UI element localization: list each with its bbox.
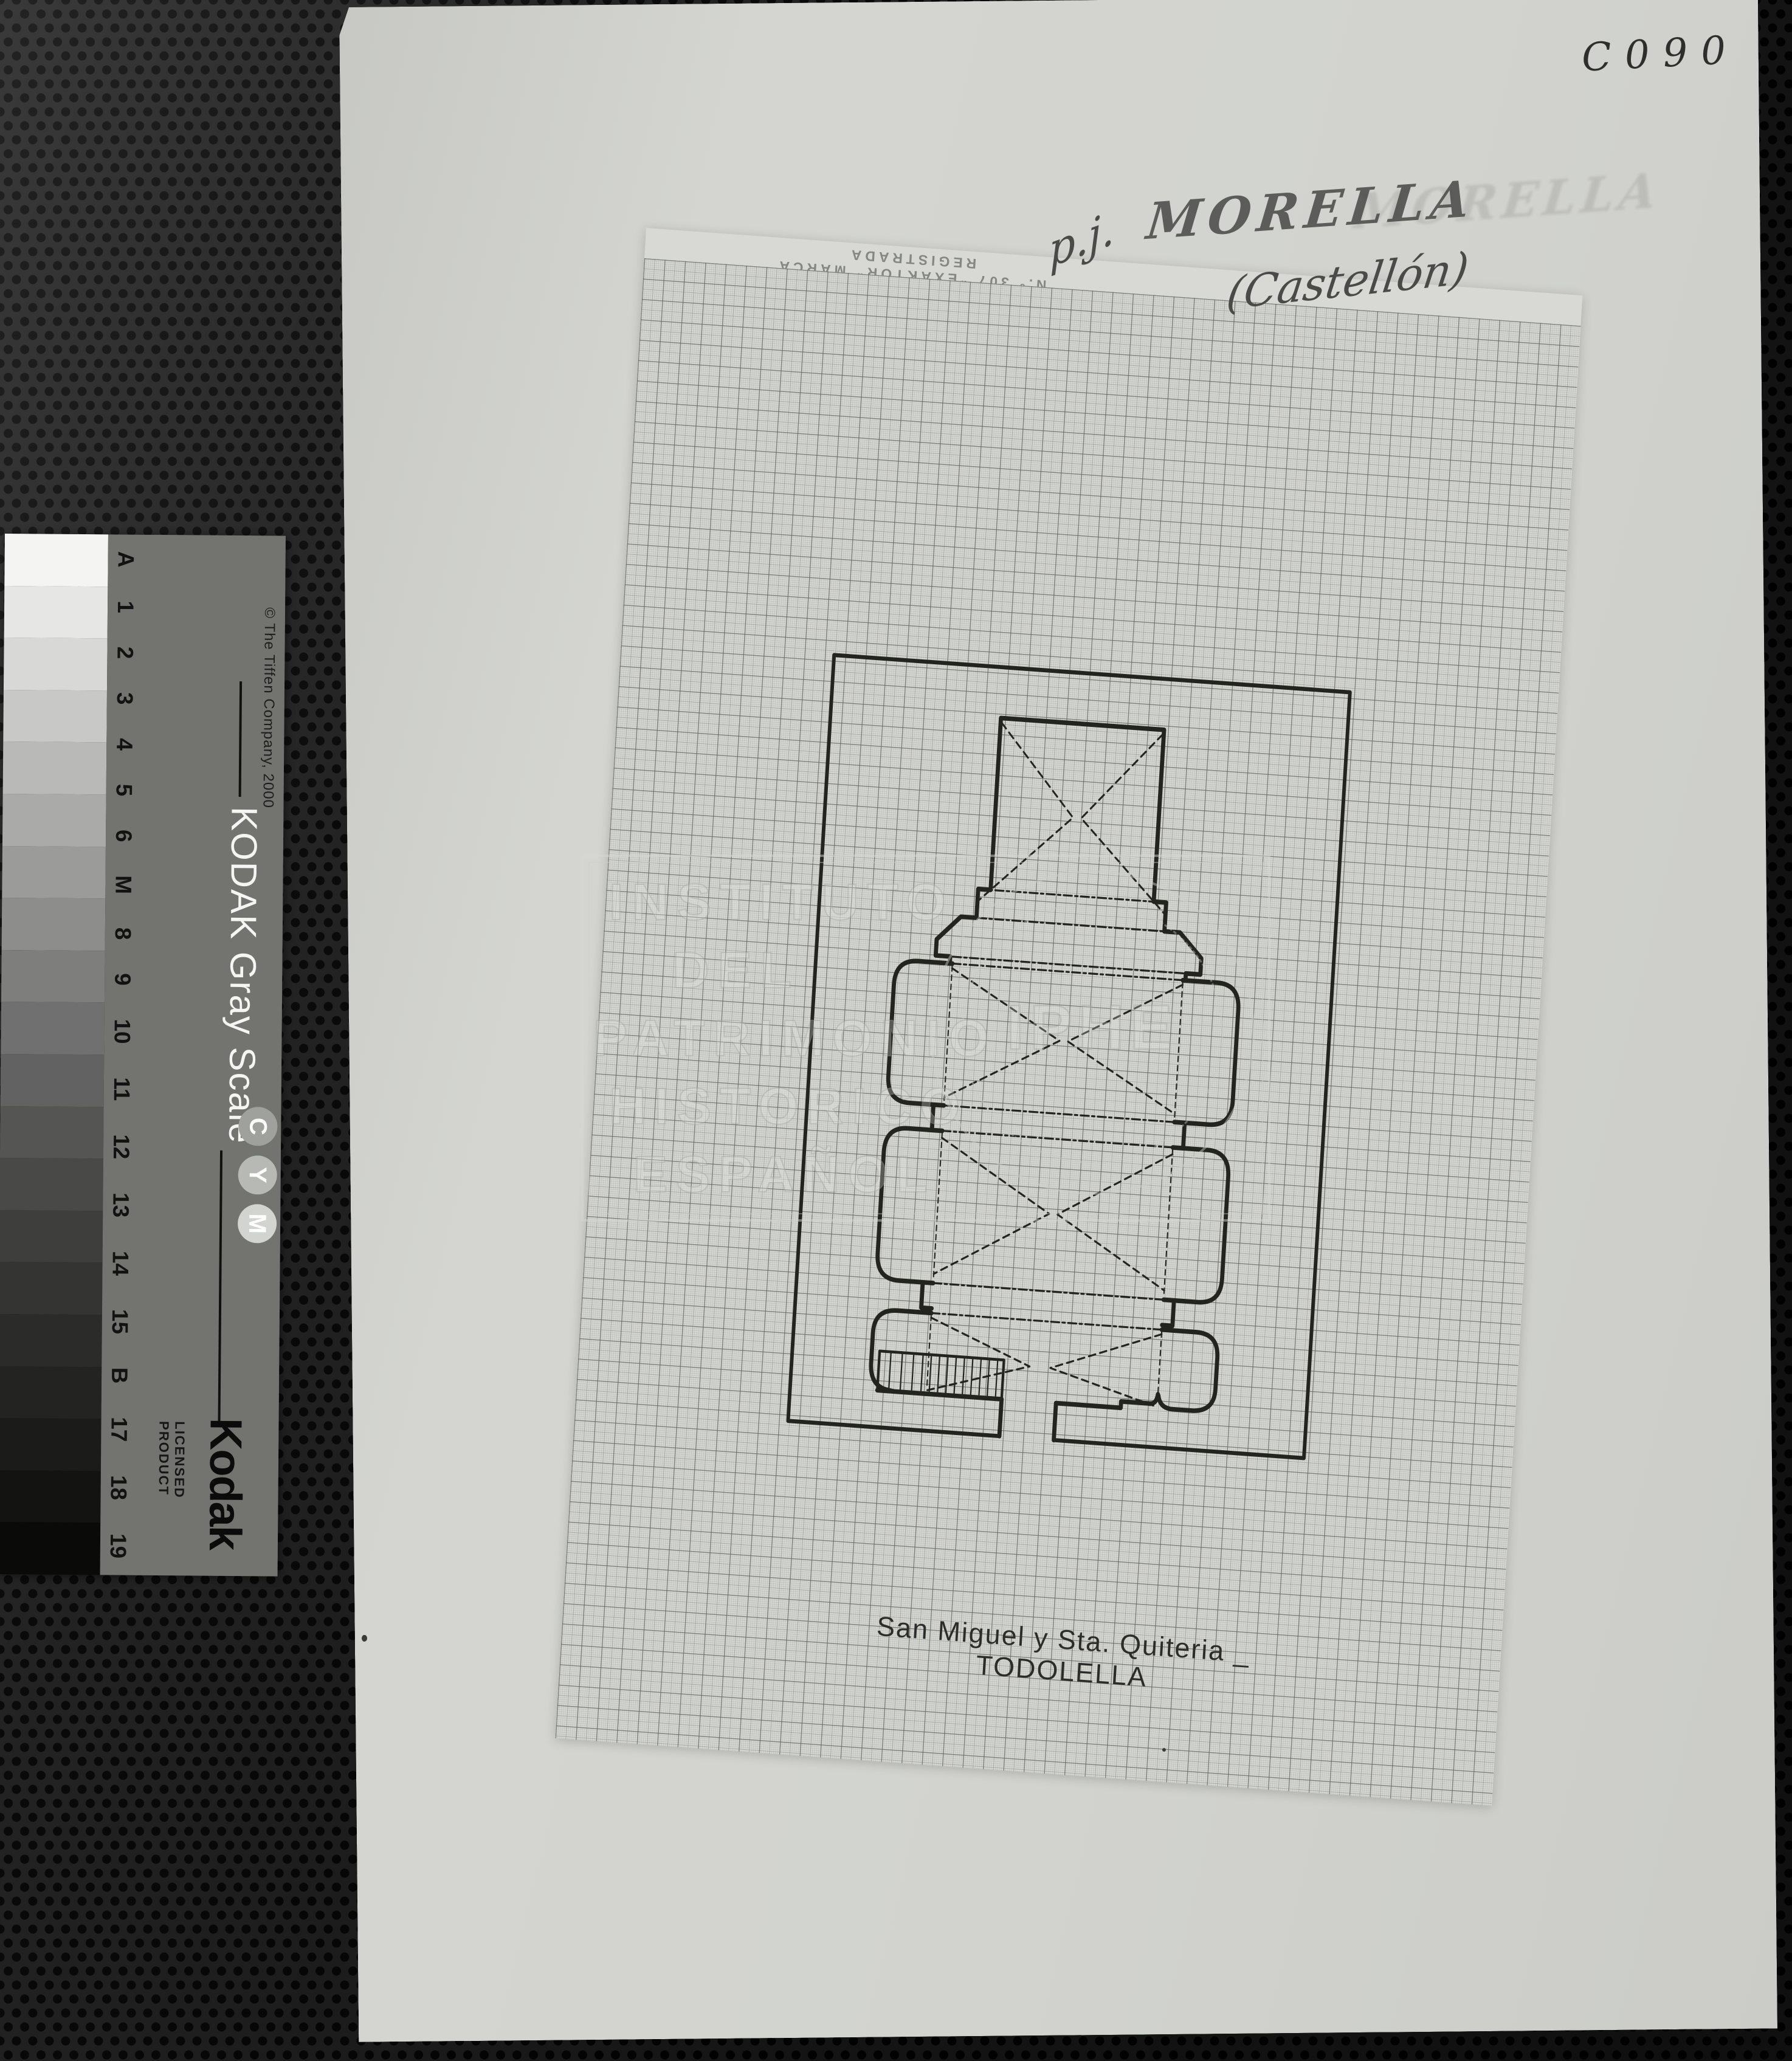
gray-patch bbox=[0, 1470, 101, 1523]
gray-patch bbox=[0, 1418, 102, 1471]
gray-patch bbox=[0, 1314, 102, 1367]
gray-patch bbox=[4, 534, 108, 587]
gray-scale-index-label: A bbox=[112, 534, 139, 584]
gray-scale-label-column: A123456M89101112131415B171819 © The Tiff… bbox=[100, 534, 286, 1576]
gray-scale-index-label: 17 bbox=[106, 1400, 132, 1459]
kodak-gray-scale-strip: A123456M89101112131415B171819 © The Tiff… bbox=[0, 534, 286, 1577]
gray-scale-index-label: 8 bbox=[110, 910, 136, 957]
gray-patch bbox=[1, 1054, 105, 1107]
gray-scale-index-label: 10 bbox=[109, 1002, 135, 1061]
gray-patch bbox=[4, 638, 108, 690]
divider-line bbox=[218, 1151, 222, 1425]
gray-patch bbox=[2, 898, 106, 951]
gray-patch bbox=[2, 846, 106, 899]
gray-patch bbox=[0, 1210, 103, 1263]
plan-bottom-walls bbox=[875, 1374, 1158, 1448]
gray-patch bbox=[0, 1158, 103, 1211]
gray-scale-index-label: 15 bbox=[106, 1292, 133, 1350]
cym-circle-y: Y bbox=[238, 1155, 277, 1195]
gray-scale-index-label: 14 bbox=[107, 1234, 133, 1292]
gray-scale-index-label: 9 bbox=[109, 957, 136, 1003]
gray-scale-index-label: 3 bbox=[112, 675, 138, 721]
gray-patch bbox=[2, 794, 106, 847]
cym-circles: CYM bbox=[238, 1107, 278, 1243]
kodak-gray-scale-title: KODAK Gray Scale bbox=[221, 807, 265, 1144]
plan-chancel-ribs bbox=[980, 722, 1174, 913]
index-labels: A123456M89101112131415B171819 bbox=[105, 534, 139, 1575]
gray-scale-index-label: 5 bbox=[111, 767, 137, 813]
divider-line bbox=[239, 681, 242, 797]
gray-scale-index-label: 19 bbox=[105, 1516, 131, 1575]
gray-patch bbox=[0, 1522, 100, 1575]
gray-scale-rotated-labels: A123456M89101112131415B171819 © The Tiff… bbox=[100, 534, 286, 1576]
plan-chancel-walls bbox=[936, 714, 1215, 981]
gray-patch bbox=[3, 741, 107, 794]
gray-patch bbox=[4, 586, 108, 639]
plan-transverse-lines bbox=[914, 886, 1204, 1331]
plan-left-chapels bbox=[869, 960, 952, 1394]
cym-circle-c: C bbox=[238, 1107, 278, 1146]
graph-paper-sheet: N.º 307 "EXAKTOR" MARCA REGISTRADA bbox=[556, 228, 1583, 1806]
gray-patch bbox=[3, 690, 107, 743]
gray-scale-index-label: 13 bbox=[108, 1176, 134, 1234]
gray-scale-index-label: B bbox=[106, 1350, 133, 1400]
kodak-logo: Kodak bbox=[199, 1418, 252, 1550]
cym-circle-m: M bbox=[238, 1204, 277, 1244]
gray-patches bbox=[0, 534, 108, 1575]
gray-scale-index-label: 4 bbox=[111, 721, 137, 768]
tiffen-copyright: © The Tiffen Company, 2000 bbox=[259, 607, 278, 808]
gray-scale-index-label: 11 bbox=[108, 1061, 134, 1118]
plan-nave-ribs bbox=[927, 968, 1183, 1407]
gray-patch bbox=[0, 1262, 103, 1315]
paper-speck bbox=[1162, 1748, 1166, 1752]
gray-patch bbox=[1, 1002, 105, 1055]
paper-speck bbox=[362, 1635, 367, 1642]
gray-scale-index-label: 18 bbox=[105, 1459, 131, 1517]
gray-scale-index-label: 2 bbox=[112, 630, 138, 676]
gray-scale-index-label: 6 bbox=[111, 813, 137, 859]
gray-scale-index-label: M bbox=[110, 859, 136, 911]
gray-patch bbox=[1, 950, 105, 1003]
archive-code-annotation: C090 bbox=[1580, 27, 1740, 80]
floor-plan-svg bbox=[754, 627, 1373, 1487]
gray-scale-index-label: 1 bbox=[112, 584, 139, 630]
archival-photo: A123456M89101112131415B171819 © The Tiff… bbox=[0, 0, 1792, 2061]
gray-patch bbox=[0, 1366, 102, 1419]
plan-staircase-outline bbox=[877, 1351, 1004, 1399]
gray-scale-index-label: 12 bbox=[108, 1118, 134, 1176]
licensed-product-label: LICENSED PRODUCT bbox=[155, 1421, 188, 1575]
gray-patch bbox=[0, 1106, 104, 1159]
